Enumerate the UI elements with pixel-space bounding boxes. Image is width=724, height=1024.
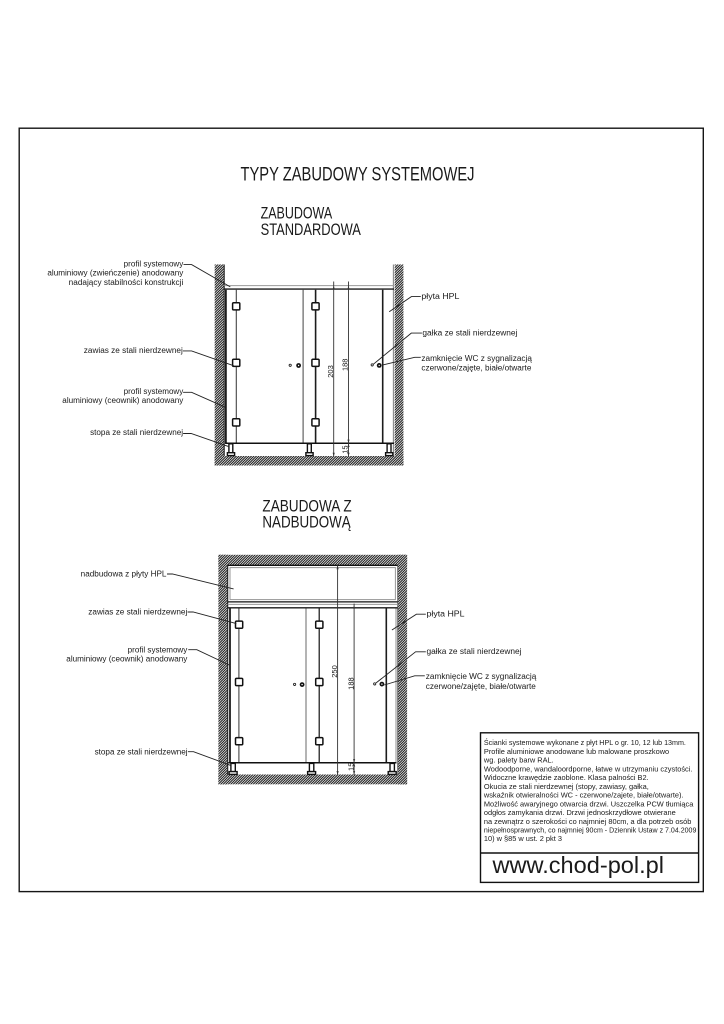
svg-text:gałka ze stali nierdzewnej: gałka ze stali nierdzewnej <box>427 647 522 656</box>
svg-text:188: 188 <box>341 359 350 372</box>
svg-text:Ścianki systemowe wykonane z p: Ścianki systemowe wykonane z płyt HPL o … <box>484 738 686 747</box>
svg-text:stopa ze stali nierdzewnej: stopa ze stali nierdzewnej <box>95 748 188 757</box>
svg-text:ZABUDOWA: ZABUDOWA <box>261 205 333 223</box>
svg-text:STANDARDOWA: STANDARDOWA <box>261 221 361 239</box>
svg-text:na zewnątrz o szerokości co na: na zewnątrz o szerokości co najmniej 80c… <box>484 817 691 826</box>
svg-text:Możliwość awaryjnego otwarcia: Możliwość awaryjnego otwarcia drzwi. Usz… <box>484 799 694 808</box>
svg-text:zamknięcie WC z sygnalizacją: zamknięcie WC z sygnalizacją <box>421 354 532 363</box>
svg-text:niepełnosprawnych, co najmniej: niepełnosprawnych, co najmniej 90cm - Dz… <box>484 826 697 835</box>
svg-text:aluminiowy (ceownik) anodowany: aluminiowy (ceownik) anodowany <box>62 396 183 405</box>
svg-text:Profile aluminiowe anodowane l: Profile aluminiowe anodowane lub malowan… <box>484 747 669 756</box>
svg-text:czerwone/zajęte, białe/otwarte: czerwone/zajęte, białe/otwarte <box>421 364 532 373</box>
svg-text:płyta HPL: płyta HPL <box>427 610 466 619</box>
svg-text:profil systemowy: profil systemowy <box>124 260 184 269</box>
svg-text:stopa ze stali nierdzewnej: stopa ze stali nierdzewnej <box>90 428 183 437</box>
svg-text:203: 203 <box>326 365 335 378</box>
svg-text:profil systemowy: profil systemowy <box>128 645 188 654</box>
svg-text:nadbudowa z płyty HPL: nadbudowa z płyty HPL <box>81 569 167 578</box>
svg-text:Okucia ze stali nierdzewnej (s: Okucia ze stali nierdzewnej (stopy, zawi… <box>484 782 649 791</box>
svg-text:NADBUDOWĄ: NADBUDOWĄ <box>262 514 350 532</box>
svg-text:15: 15 <box>347 763 356 771</box>
svg-text:zawias ze stali nierdzewnej: zawias ze stali nierdzewnej <box>84 346 183 355</box>
svg-text:płyta HPL: płyta HPL <box>421 292 460 301</box>
svg-text:10) w §85 w ust. 2 pkt 3: 10) w §85 w ust. 2 pkt 3 <box>484 834 562 843</box>
svg-text:profil systemowy: profil systemowy <box>124 387 184 396</box>
svg-text:Widoczne krawędzie zaoblone. K: Widoczne krawędzie zaoblone. Klasa palno… <box>484 773 649 782</box>
svg-text:www.chod-pol.pl: www.chod-pol.pl <box>491 852 664 878</box>
svg-text:czerwone/zajęte, białe/otwarte: czerwone/zajęte, białe/otwarte <box>426 682 537 691</box>
svg-text:odgłos zamykania drzwi. Drzwi: odgłos zamykania drzwi. Drzwi jednoskrzy… <box>484 808 676 817</box>
svg-text:wg. palety barw RAL.: wg. palety barw RAL. <box>483 756 554 765</box>
svg-text:188: 188 <box>347 677 356 690</box>
svg-text:15: 15 <box>340 445 349 453</box>
svg-text:zamknięcie WC z sygnalizacją: zamknięcie WC z sygnalizacją <box>426 672 537 681</box>
svg-text:TYPY ZABUDOWY SYSTEMOWEJ: TYPY ZABUDOWY SYSTEMOWEJ <box>241 165 475 186</box>
svg-text:gałka ze stali nierdzewnej: gałka ze stali nierdzewnej <box>422 329 517 338</box>
svg-text:aluminiowy (zwieńczenie) anodo: aluminiowy (zwieńczenie) anodowany <box>47 269 183 278</box>
svg-text:Wodoodporne, wandaloordporne,: Wodoodporne, wandaloordporne, łatwe w ut… <box>484 764 693 773</box>
svg-text:aluminiowy (ceownik) anodowany: aluminiowy (ceownik) anodowany <box>66 655 187 664</box>
svg-text:nadający stabilności konstrukc: nadający stabilności konstrukcji <box>69 278 184 287</box>
svg-text:250: 250 <box>330 665 339 678</box>
svg-text:wskaźnik otwieralności WC - cz: wskaźnik otwieralności WC - czerwone/zaj… <box>483 791 684 800</box>
svg-text:zawias ze stali nierdzewnej: zawias ze stali nierdzewnej <box>88 608 187 617</box>
